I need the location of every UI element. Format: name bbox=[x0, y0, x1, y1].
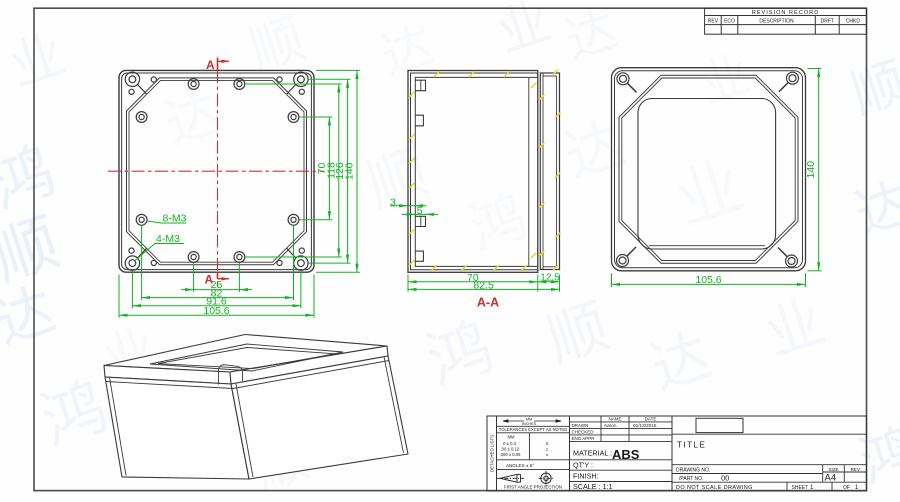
svg-text:CHECKED: CHECKED bbox=[572, 430, 595, 435]
svg-text:DRAWING NO.: DRAWING NO. bbox=[676, 468, 710, 474]
svg-text:REVISION RECORD: REVISION RECORD bbox=[752, 10, 820, 16]
svg-text:FIRST ANGLE PROJECTION: FIRST ANGLE PROJECTION bbox=[504, 485, 562, 490]
svg-text:FINISH:: FINISH: bbox=[573, 471, 599, 480]
svg-text:ECO: ECO bbox=[724, 18, 735, 24]
svg-text:140: 140 bbox=[344, 162, 356, 180]
svg-text:DRFT: DRFT bbox=[821, 18, 834, 24]
svg-text:DATE: DATE bbox=[645, 417, 657, 422]
svg-text:00: 00 bbox=[721, 474, 729, 483]
svg-text:INCHES: INCHES bbox=[522, 422, 537, 426]
svg-text:5: 5 bbox=[417, 205, 423, 217]
svg-text:REV: REV bbox=[708, 18, 719, 24]
svg-text:Aaron: Aaron bbox=[604, 423, 617, 428]
svg-text:QT'Y :: QT'Y : bbox=[573, 460, 593, 469]
svg-text:A-A: A-A bbox=[477, 296, 499, 310]
svg-text:ENG APPR: ENG APPR bbox=[572, 436, 596, 441]
svg-text:01/13/2015: 01/13/2015 bbox=[633, 423, 657, 428]
svg-text:±: ± bbox=[546, 447, 549, 452]
svg-text:105.6: 105.6 bbox=[695, 274, 721, 286]
svg-text:/PART NO.: /PART NO. bbox=[679, 476, 703, 482]
svg-text:MATERIAL :: MATERIAL : bbox=[573, 448, 612, 457]
svg-text:X: X bbox=[546, 441, 549, 446]
svg-text:ABS: ABS bbox=[612, 447, 640, 462]
svg-text:DO NOT SCALE DRAWING: DO NOT SCALE DRAWING bbox=[676, 485, 753, 491]
svg-text:.000 ± 0.05: .000 ± 0.05 bbox=[500, 452, 522, 457]
svg-text:OF: OF bbox=[843, 485, 850, 491]
svg-text:SHEET: SHEET bbox=[792, 485, 809, 491]
svg-text:ANGLES ± 5°: ANGLES ± 5° bbox=[506, 463, 534, 468]
svg-text:MM: MM bbox=[508, 435, 515, 440]
svg-text:SIZE: SIZE bbox=[828, 467, 838, 472]
svg-text:140: 140 bbox=[805, 161, 817, 179]
svg-text:82.5: 82.5 bbox=[473, 279, 494, 291]
svg-text:3: 3 bbox=[390, 196, 396, 208]
svg-text:SCALE : 1:1: SCALE : 1:1 bbox=[573, 482, 613, 491]
svg-text:NAME: NAME bbox=[608, 417, 621, 422]
svg-text:.00 ± 0.12: .00 ± 0.12 bbox=[501, 447, 520, 452]
svg-text:12.5: 12.5 bbox=[540, 272, 560, 283]
svg-text:A4: A4 bbox=[825, 473, 837, 484]
svg-text:TITLE: TITLE bbox=[677, 441, 706, 450]
svg-text:REV: REV bbox=[851, 467, 860, 472]
svg-text:DESCRIPTION: DESCRIPTION bbox=[759, 18, 794, 24]
svg-text:CHKD: CHKD bbox=[846, 18, 861, 24]
svg-text:DRAWN: DRAWN bbox=[572, 423, 589, 428]
svg-text:DETACHED LISTS: DETACHED LISTS bbox=[490, 435, 495, 472]
svg-text:105.6: 105.6 bbox=[203, 305, 229, 317]
svg-text:TOLERANCES EXCEPT AS NOTED: TOLERANCES EXCEPT AS NOTED bbox=[499, 427, 568, 432]
svg-text:MM: MM bbox=[526, 417, 532, 421]
svg-text:A: A bbox=[206, 58, 215, 72]
svg-text:.0 ± 0.3: .0 ± 0.3 bbox=[502, 441, 517, 446]
svg-text:±: ± bbox=[546, 452, 549, 457]
